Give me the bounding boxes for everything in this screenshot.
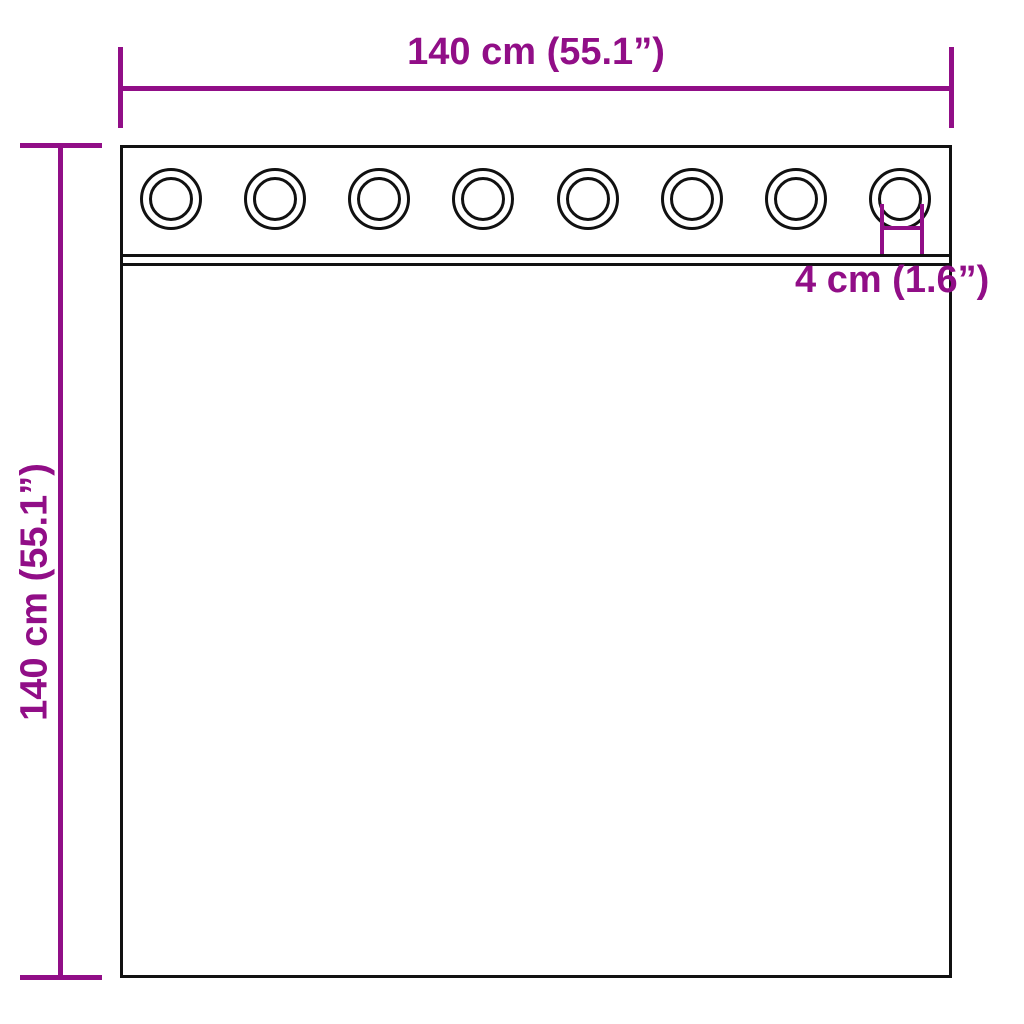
grommet (452, 168, 514, 230)
grommet-dimension-label: 4 cm (1.6”) (795, 258, 989, 302)
grommet (661, 168, 723, 230)
header-seam-line-upper (121, 254, 951, 257)
width-dimension-label: 140 cm (55.1”) (120, 30, 952, 74)
grommet (765, 168, 827, 230)
grommet (557, 168, 619, 230)
grommet-inner-ring (878, 177, 922, 221)
grommet-inner-ring (357, 177, 401, 221)
width-dimension-tick-left (118, 47, 123, 128)
grommet-inner-ring (149, 177, 193, 221)
grommet (244, 168, 306, 230)
height-dimension-tick-bottom (20, 975, 102, 980)
height-dimension-tick-top (20, 143, 102, 148)
curtain-dimension-diagram: 140 cm (55.1”) 140 cm (55.1”) 4 cm (1.6”… (0, 0, 1024, 1024)
height-dimension-label: 140 cm (55.1”) (13, 176, 57, 1009)
grommet-inner-ring (461, 177, 505, 221)
grommet (140, 168, 202, 230)
height-dimension-line (58, 145, 63, 978)
width-dimension-line (120, 86, 952, 91)
grommet (348, 168, 410, 230)
grommet-inner-ring (253, 177, 297, 221)
grommet-bracket-crossbar (880, 226, 924, 230)
grommet-inner-ring (774, 177, 818, 221)
width-dimension-tick-right (949, 47, 954, 128)
grommet-inner-ring (566, 177, 610, 221)
grommet-inner-ring (670, 177, 714, 221)
